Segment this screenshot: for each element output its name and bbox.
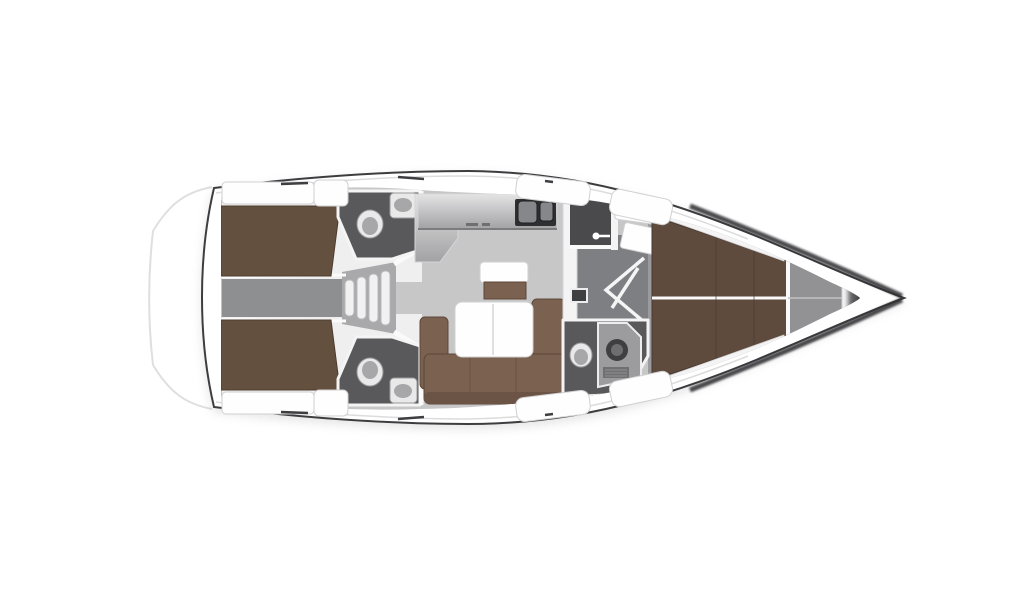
sink-basin [394, 198, 412, 212]
salon-table [455, 302, 533, 357]
stern-faint-top [153, 187, 212, 231]
nav-seat-cushion [484, 282, 526, 299]
deck-locker [314, 180, 348, 206]
table-top [455, 302, 533, 357]
sink-basin [394, 384, 412, 398]
nav-seat [480, 262, 528, 299]
aft-cabin-port-bed [221, 206, 340, 276]
aft-head-starboard [338, 337, 420, 405]
shower-drain-center [611, 344, 623, 356]
toe-rail-mark [281, 412, 308, 413]
nav-seat-top [480, 262, 528, 283]
toilet-bowl [362, 361, 378, 379]
counter-fitting [466, 223, 478, 226]
aft-corridor [214, 279, 346, 317]
cockpit-coaming [222, 392, 314, 414]
corridor-locker [571, 289, 587, 302]
toe-rail-mark [281, 183, 308, 184]
toilet-bowl [574, 349, 588, 365]
sink-basin-large [518, 201, 537, 223]
door-handle-knob [593, 233, 600, 240]
stern-faint-bottom [153, 365, 212, 409]
step [345, 280, 354, 316]
stern-faint-edge [149, 231, 153, 365]
step [381, 271, 390, 325]
deck-locker [314, 390, 348, 416]
screenshot-canvas [0, 0, 1024, 600]
step [369, 274, 378, 322]
counter-fitting [482, 223, 490, 226]
aft-head-port [338, 191, 420, 259]
yacht-floor-plan [0, 0, 1024, 600]
step [357, 277, 366, 319]
cockpit-coaming [222, 182, 314, 204]
toe-rail-mark [545, 414, 553, 415]
aft-cabin-starboard-bed [221, 320, 340, 390]
sink-basin-small [540, 202, 553, 221]
toe-rail-mark [545, 181, 553, 182]
toilet-bowl [362, 217, 378, 235]
